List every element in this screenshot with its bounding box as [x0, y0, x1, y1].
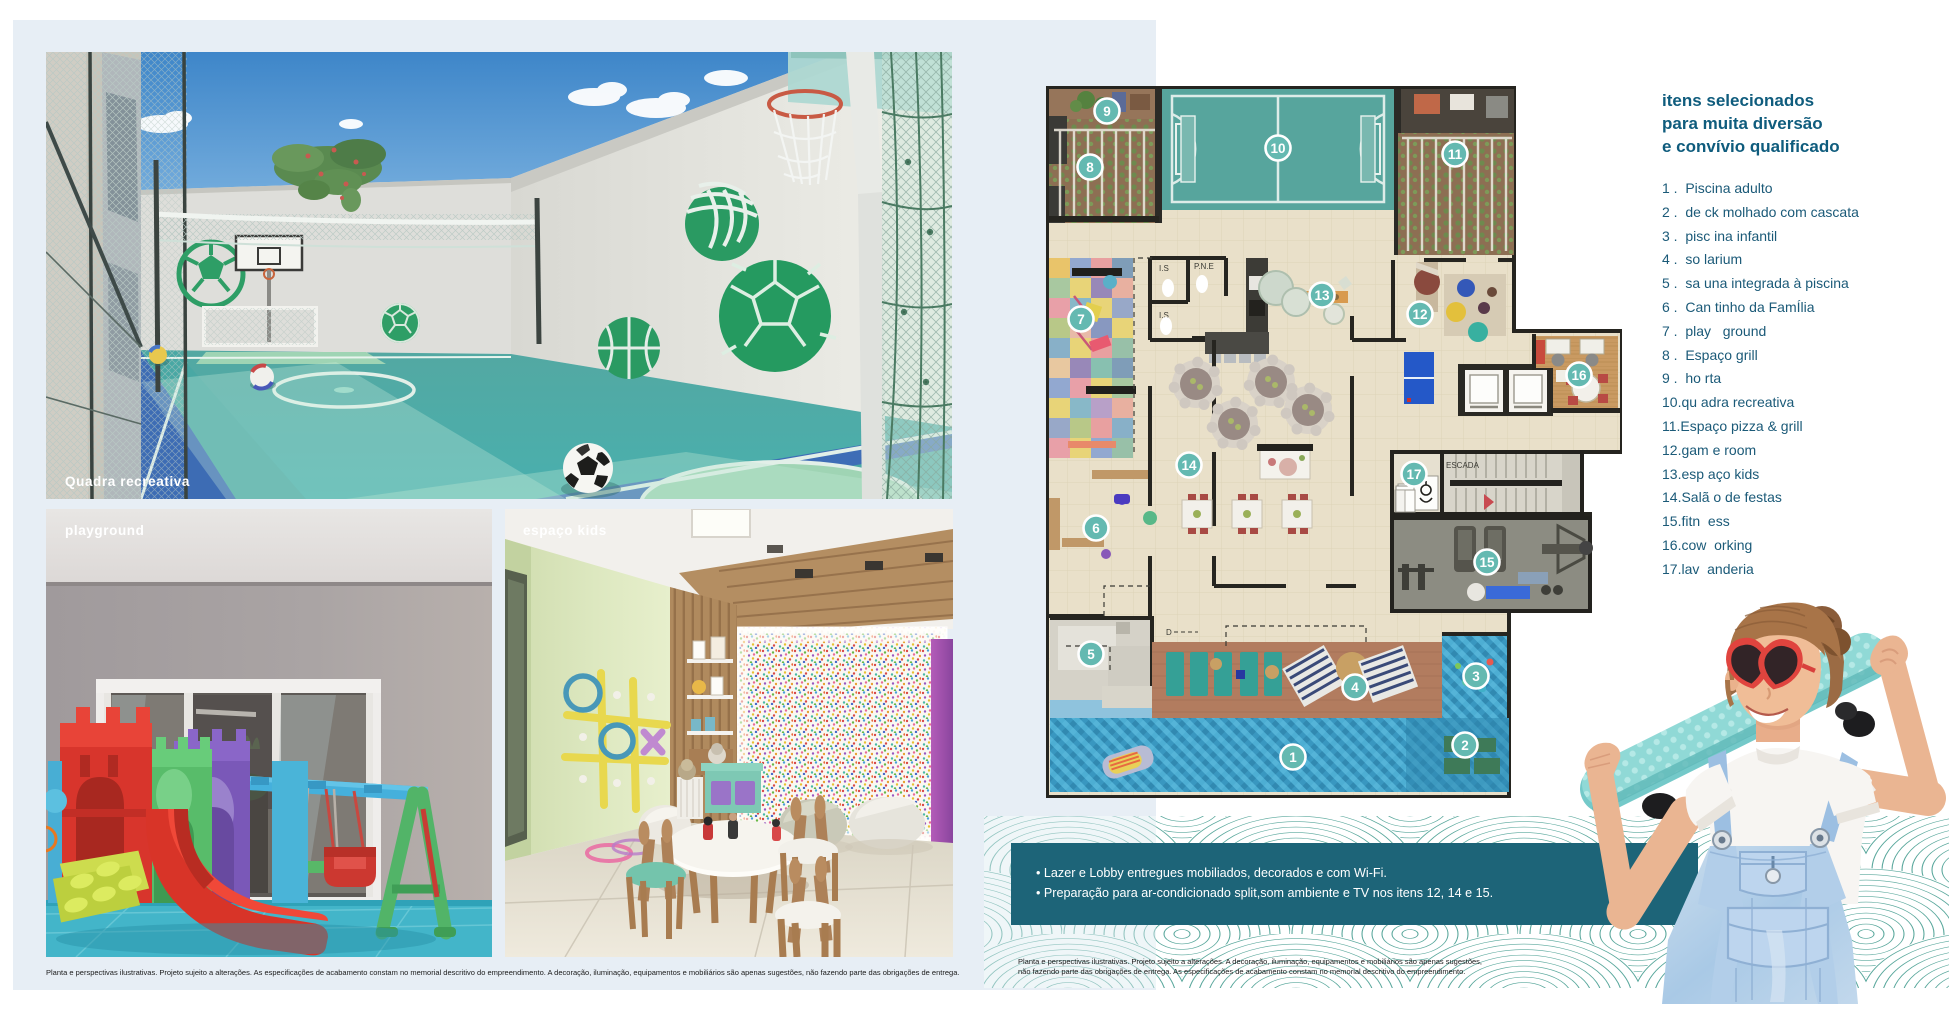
svg-text:ESCADA: ESCADA [1446, 461, 1480, 470]
svg-text:7: 7 [1077, 312, 1085, 327]
svg-text:14: 14 [1181, 458, 1197, 473]
svg-text:17: 17 [1406, 467, 1421, 482]
svg-text:I.S: I.S [1159, 264, 1169, 273]
svg-text:1: 1 [1289, 750, 1297, 765]
svg-text:6: 6 [1092, 521, 1100, 536]
svg-text:13: 13 [1314, 288, 1330, 303]
svg-text:9: 9 [1103, 104, 1111, 119]
svg-text:8: 8 [1086, 160, 1094, 175]
svg-text:12: 12 [1412, 307, 1427, 322]
svg-text:3: 3 [1472, 669, 1480, 684]
svg-text:2: 2 [1461, 738, 1469, 753]
svg-text:4: 4 [1351, 680, 1359, 695]
svg-text:11: 11 [1448, 147, 1463, 162]
svg-text:5: 5 [1087, 647, 1095, 662]
svg-text:15: 15 [1479, 555, 1495, 570]
svg-text:P.N.E: P.N.E [1194, 262, 1214, 271]
svg-text:10: 10 [1270, 141, 1285, 156]
svg-text:D: D [1166, 628, 1172, 637]
svg-text:16: 16 [1571, 368, 1587, 383]
